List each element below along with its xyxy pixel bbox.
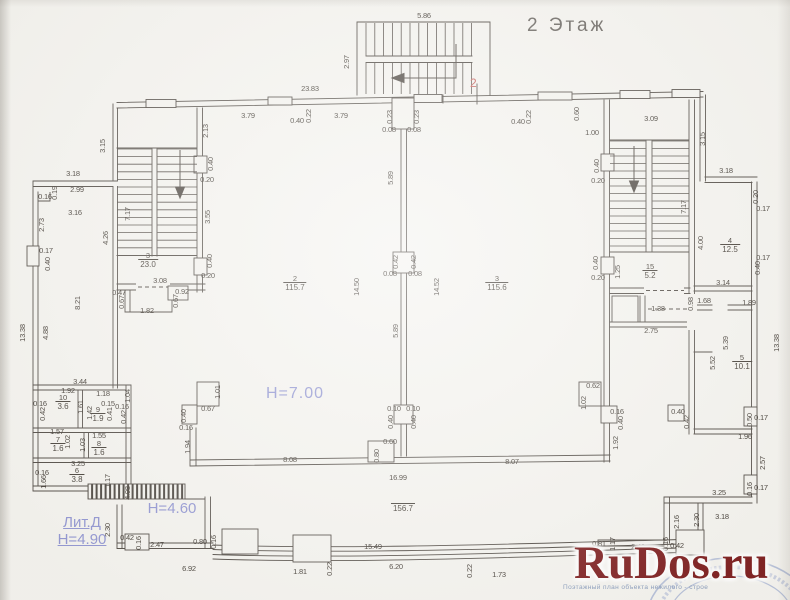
left-height-label: H=4.60 — [148, 500, 197, 517]
room-number: 7 — [50, 436, 65, 443]
room-area: 115.7 — [283, 282, 306, 292]
room-label: 2115.7 — [283, 275, 306, 292]
liter-label: Лит.Д — [63, 514, 101, 531]
room-area: 10.1 — [732, 361, 752, 371]
hall-height-label: H=7.00 — [266, 385, 324, 403]
room-labels-layer: 2115.73115.6323.0155.2412.5510.1103.691.… — [0, 0, 790, 600]
room-area: 3.6 — [55, 401, 70, 411]
room-label: 63.8 — [69, 467, 84, 484]
room-area: 1.6 — [91, 447, 106, 457]
room-label: 155.2 — [642, 263, 657, 280]
page-title: 2 Этаж — [527, 15, 606, 37]
room-area: 12.5 — [720, 244, 740, 254]
room-number: 5 — [732, 354, 752, 361]
room-number: 4 — [720, 237, 740, 244]
room-label: 103.6 — [55, 394, 70, 411]
room-number: 2 — [283, 275, 306, 282]
room-label: 81.6 — [91, 440, 106, 457]
room-label: 91.9 — [90, 406, 105, 423]
room-area: 1.6 — [50, 443, 65, 453]
scanned-floor-plan-page: { "title": "2 Этаж", "floor_mark": "2", … — [0, 0, 790, 600]
rudos-watermark: RuDos.ru — [574, 538, 769, 588]
room-label: 71.6 — [50, 436, 65, 453]
room-label: 510.1 — [732, 354, 752, 371]
room-area: 5.2 — [642, 270, 657, 280]
room-area: 115.6 — [485, 282, 508, 292]
room-number: 9 — [90, 406, 105, 413]
room-label: 323.0 — [138, 252, 158, 269]
room-area: 23.0 — [138, 259, 158, 269]
room-label: 3115.6 — [485, 275, 508, 292]
red-floor-mark: 2 — [470, 76, 477, 90]
room-number: 3 — [485, 275, 508, 282]
room-number: 3 — [138, 252, 158, 259]
room-label: 412.5 — [720, 237, 740, 254]
room-area: 156.7 — [391, 503, 415, 513]
room-label: 156.7 — [391, 503, 415, 513]
room-number: 8 — [91, 440, 106, 447]
liter-height-label: H=4.90 — [58, 531, 107, 548]
room-number: 6 — [69, 467, 84, 474]
room-area: 3.8 — [69, 474, 84, 484]
room-number: 10 — [55, 394, 70, 401]
room-number: 15 — [642, 263, 657, 270]
room-area: 1.9 — [90, 413, 105, 423]
